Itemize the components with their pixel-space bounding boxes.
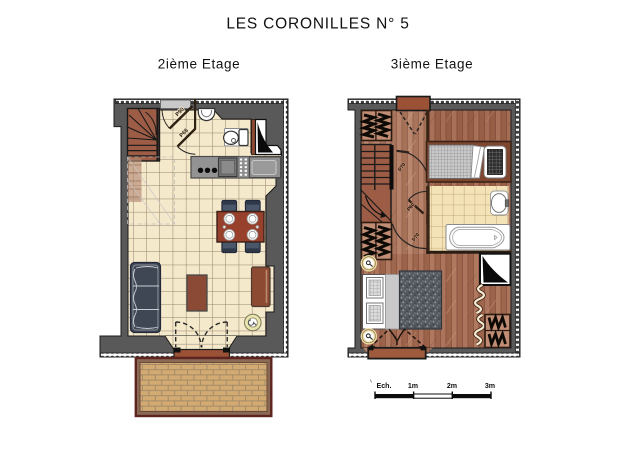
svg-text:3m: 3m xyxy=(485,382,495,390)
svg-text:LES CORONILLES N° 5: LES CORONILLES N° 5 xyxy=(226,16,409,33)
svg-text:Ech.: Ech. xyxy=(377,382,392,390)
svg-text:3ième Etage: 3ième Etage xyxy=(391,57,473,72)
svg-text:1m: 1m xyxy=(408,382,418,390)
svg-text:2ième Etage: 2ième Etage xyxy=(158,57,240,72)
svg-text:2m: 2m xyxy=(447,382,457,390)
